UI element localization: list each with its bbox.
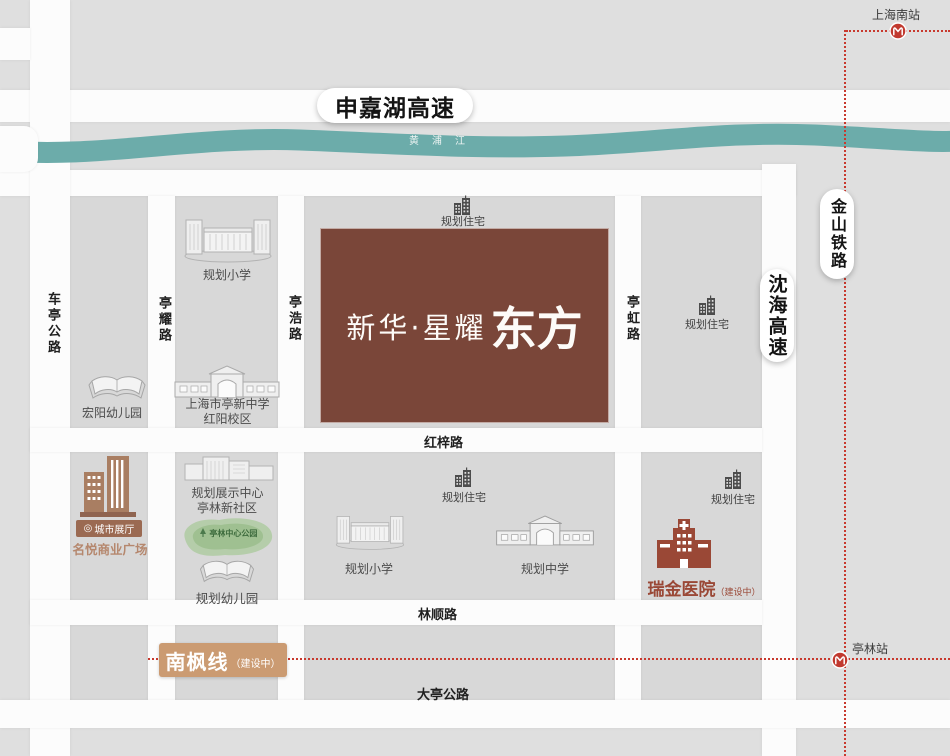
primary-school-illustration — [330, 506, 410, 552]
poi-label-primary-school-north: 规划小学 — [192, 266, 262, 283]
river-band — [0, 118, 950, 178]
ruijin-hospital-status: （建设中） — [715, 588, 760, 598]
road-label-cheting: 车亭公路 — [43, 292, 62, 356]
station-label-tinglin: 亭林站 — [852, 640, 888, 657]
residential-buildings-icon — [723, 468, 743, 490]
ruijin-hospital-name: 瑞金医院 — [647, 580, 715, 600]
nanfeng-line-banner: 南枫线 （建设中） — [159, 643, 287, 677]
road-label-tinghao: 亭浩路 — [284, 295, 303, 343]
residential-buildings-icon — [697, 294, 717, 316]
tree-icon — [199, 528, 207, 537]
road-shenhai-expressway — [762, 164, 796, 756]
pin-icon: ◎ — [84, 523, 93, 534]
project-brand-text: 新华·星耀 — [346, 305, 486, 347]
station-label-shanghai-south: 上海南站 — [872, 6, 920, 23]
hospital-icon — [652, 516, 716, 574]
road-cheting — [30, 0, 70, 756]
nanfeng-line-name: 南枫线 — [166, 646, 229, 675]
railway-label-jinshan: 金山铁路 — [820, 189, 854, 279]
mingyue-towers-icon — [80, 452, 136, 518]
poi-label-primary-school-south: 规划小学 — [334, 560, 404, 577]
residential-buildings-icon — [453, 466, 473, 488]
project-block: 新华·星耀 东方 — [320, 228, 609, 423]
road-hongzi — [30, 428, 762, 452]
poi-label-tingxin-line1: 上海市亭新中学 — [180, 397, 275, 412]
road-dating — [0, 700, 950, 728]
middle-school-illustration — [492, 510, 598, 550]
poi-label-middle-school: 规划中学 — [510, 560, 580, 577]
poi-label-tingxin-line2: 红阳校区 — [195, 412, 260, 427]
poi-label-exhibition-line1: 规划展示中心 — [180, 486, 275, 501]
open-book-icon — [196, 553, 258, 589]
poi-label-mingyue-plaza: 名悦商业广场 — [62, 539, 158, 558]
jinshan-railway-line — [844, 30, 846, 756]
metro-station-icon-shanghai-south — [889, 22, 907, 40]
city-showroom-text: 城市展厅 — [94, 521, 134, 536]
primary-school-illustration — [177, 208, 279, 264]
poi-label-exhibition-line2: 亭林新社区 — [186, 501, 268, 516]
central-park-text: 亭林中心公园 — [209, 529, 257, 538]
expressway-label-shenjiahu: 申嘉湖高速 — [317, 88, 473, 123]
road-stub-topleft — [0, 28, 30, 60]
poi-label-residential-east: 规划住宅 — [682, 316, 732, 332]
project-name-text: 东方 — [491, 293, 583, 359]
river-label: 黄浦江 — [409, 132, 478, 147]
poi-label-hongyang-kindergarten: 宏阳幼儿园 — [76, 404, 148, 421]
city-showroom-badge: ◎ 城市展厅 — [76, 520, 142, 537]
poi-label-planned-kindergarten: 规划幼儿园 — [186, 588, 268, 607]
nanfeng-line-status: （建设中） — [231, 655, 281, 670]
road-label-dating: 大亭公路 — [417, 684, 469, 703]
tingxin-school-illustration — [170, 364, 284, 398]
expressway-label-shenhai: 沈海高速 — [760, 269, 794, 362]
road-stub-river — [0, 126, 38, 172]
poi-label-residential-central: 规划住宅 — [439, 489, 489, 505]
poi-label-ruijin-hospital: 瑞金医院（建设中） — [646, 575, 762, 600]
road-label-tinghong: 亭虹路 — [622, 295, 641, 343]
road-label-hongzi: 红梓路 — [424, 432, 463, 451]
project-logo: 新华·星耀 东方 — [346, 293, 582, 359]
poi-label-central-park: 亭林中心公园 — [188, 528, 268, 539]
block-south-1 — [70, 625, 148, 700]
open-book-icon — [85, 368, 149, 406]
block-south-4 — [641, 625, 762, 700]
poi-label-residential-southeast: 规划住宅 — [708, 491, 758, 507]
map-canvas: 黄浦江 申嘉湖高速 沈海高速 金山铁路 上海南站 亭林站 车亭公路 亭耀路 亭浩… — [0, 0, 950, 756]
metro-station-icon-tinglin — [831, 651, 849, 669]
exhibition-center-illustration — [183, 452, 275, 482]
poi-label-residential-north: 规划住宅 — [438, 213, 488, 229]
road-linshun — [30, 600, 762, 625]
road-label-linshun: 林顺路 — [418, 604, 457, 623]
road-label-tingyao: 亭耀路 — [154, 296, 173, 344]
